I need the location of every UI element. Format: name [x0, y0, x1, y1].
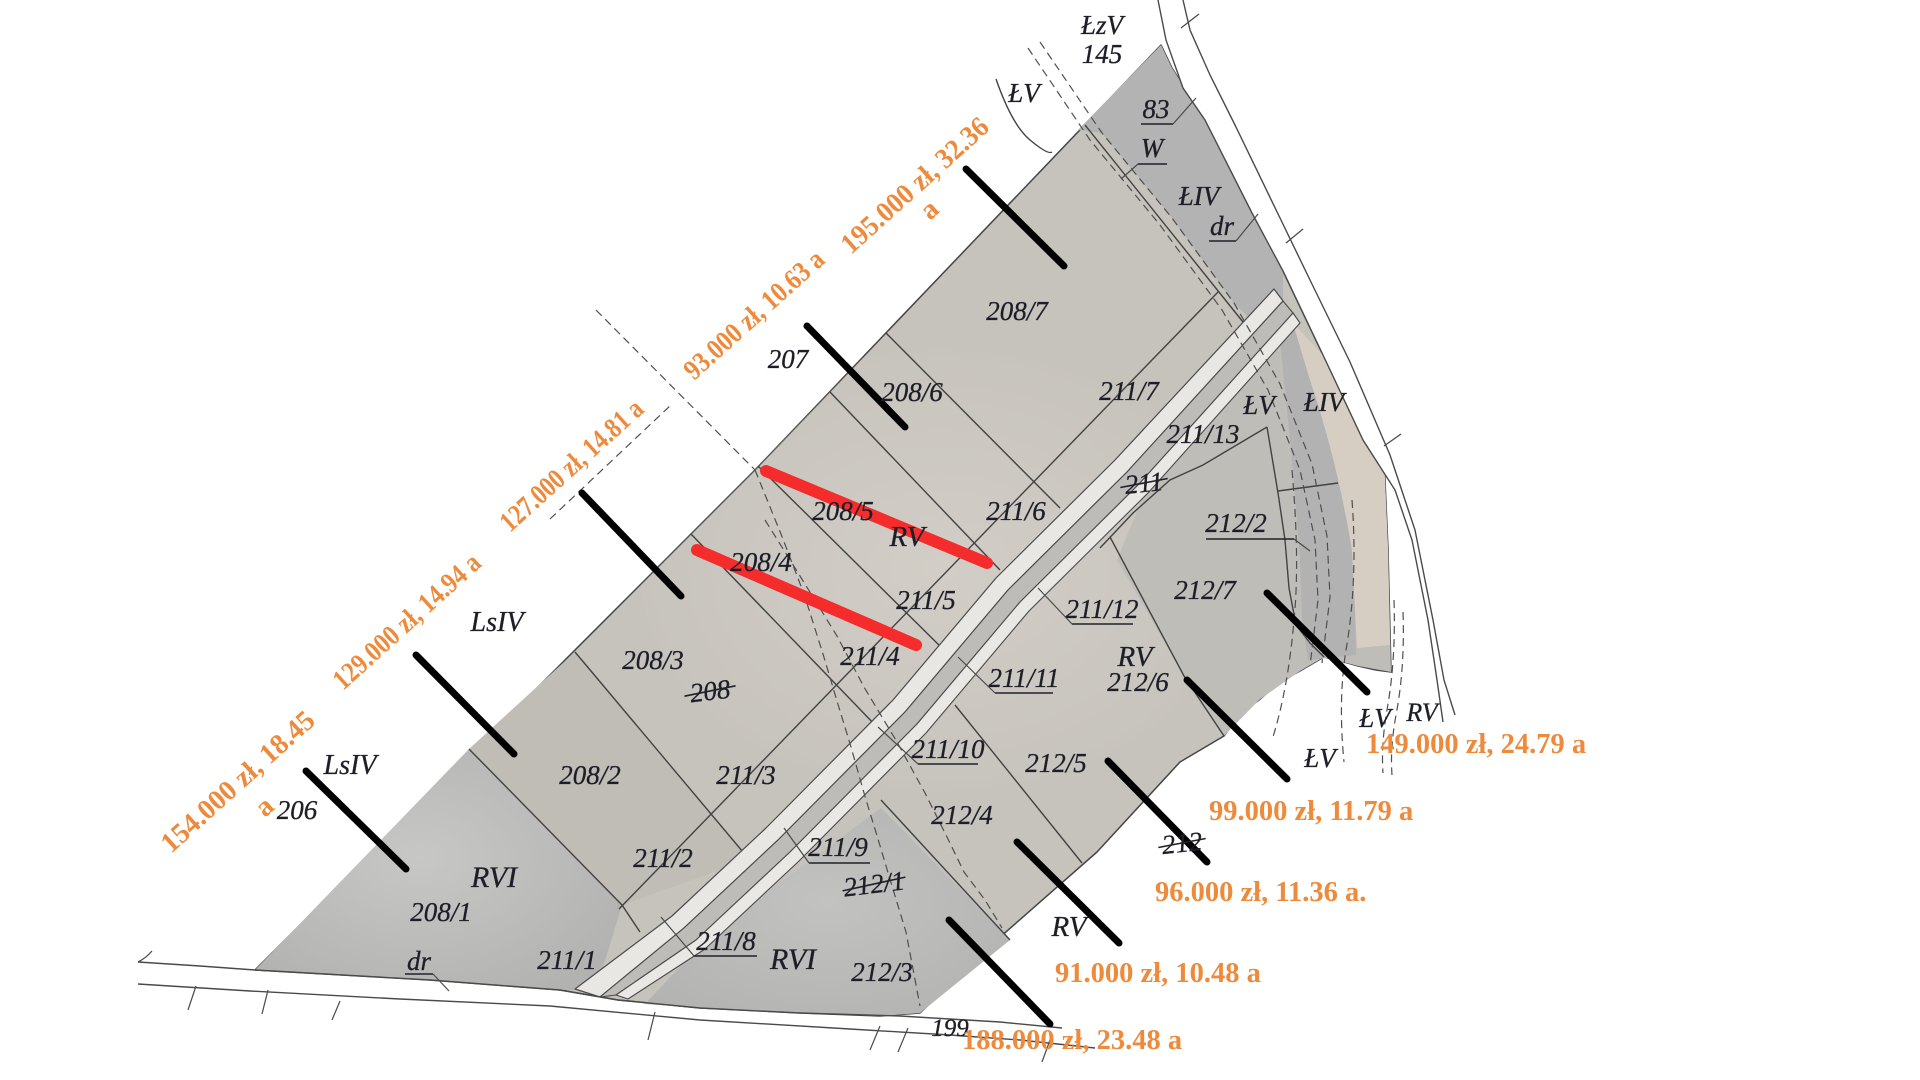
svg-text:RV: RV — [1051, 911, 1090, 943]
svg-text:208/6: 208/6 — [881, 377, 943, 407]
svg-text:LsIV: LsIV — [470, 607, 527, 638]
svg-text:a: a — [249, 791, 280, 824]
svg-text:212/4: 212/4 — [931, 800, 993, 830]
svg-text:154.000 zł, 18.45: 154.000 zł, 18.45 — [155, 705, 321, 859]
svg-text:212/3: 212/3 — [851, 957, 913, 987]
svg-text:212/2: 212/2 — [1205, 508, 1267, 538]
svg-text:dr: dr — [407, 946, 432, 976]
svg-text:211/3: 211/3 — [716, 760, 776, 790]
svg-text:208/4: 208/4 — [730, 547, 792, 577]
svg-text:211/10: 211/10 — [912, 734, 985, 764]
svg-text:149.000 zł, 24.79 a: 149.000 zł, 24.79 a — [1366, 729, 1586, 760]
svg-text:211/1: 211/1 — [537, 945, 597, 975]
svg-text:83: 83 — [1143, 94, 1170, 124]
svg-text:RV: RV — [1405, 698, 1440, 727]
svg-text:211/9: 211/9 — [808, 832, 868, 862]
svg-text:RVI: RVI — [769, 943, 818, 976]
svg-text:211/8: 211/8 — [696, 926, 756, 956]
svg-text:207: 207 — [768, 344, 810, 374]
svg-text:208/2: 208/2 — [559, 760, 621, 790]
svg-text:211/6: 211/6 — [986, 496, 1046, 526]
svg-text:211/11: 211/11 — [989, 663, 1060, 693]
svg-text:208/3: 208/3 — [622, 645, 684, 675]
svg-text:ŁV: ŁV — [1242, 390, 1278, 420]
svg-text:212/7: 212/7 — [1174, 575, 1237, 605]
svg-text:212/5: 212/5 — [1025, 748, 1087, 778]
svg-text:211/2: 211/2 — [633, 843, 693, 873]
svg-text:211/5: 211/5 — [896, 585, 956, 615]
svg-text:a: a — [914, 194, 945, 227]
svg-text:ŁV: ŁV — [1007, 78, 1043, 108]
svg-text:99.000 zł, 11.79 a: 99.000 zł, 11.79 a — [1209, 796, 1413, 827]
svg-text:ŁIV: ŁIV — [1303, 387, 1348, 417]
svg-text:208/1: 208/1 — [410, 897, 472, 927]
svg-text:211/4: 211/4 — [840, 641, 900, 671]
svg-text:dr: dr — [1210, 211, 1235, 241]
svg-text:129.000 zł, 14.94 a: 129.000 zł, 14.94 a — [327, 547, 487, 696]
svg-text:208/7: 208/7 — [986, 296, 1049, 326]
svg-text:LsIV: LsIV — [323, 750, 380, 781]
svg-text:208/5: 208/5 — [812, 496, 874, 526]
svg-text:96.000 zł, 11.36 a.: 96.000 zł, 11.36 a. — [1155, 877, 1366, 908]
svg-text:211/7: 211/7 — [1099, 376, 1160, 406]
svg-text:188.000 zł, 23.48 a: 188.000 zł, 23.48 a — [962, 1025, 1182, 1056]
svg-text:211/12: 211/12 — [1066, 594, 1139, 624]
svg-text:145: 145 — [1082, 39, 1123, 69]
svg-text:91.000 zł, 10.48 a: 91.000 zł, 10.48 a — [1055, 958, 1261, 989]
svg-text:211/13: 211/13 — [1167, 419, 1240, 449]
svg-text:W: W — [1141, 133, 1166, 163]
svg-text:RVI: RVI — [470, 861, 519, 894]
svg-text:127.000 zł, 14.81 a: 127.000 zł, 14.81 a — [494, 393, 650, 538]
svg-text:ŁIV: ŁIV — [1178, 181, 1223, 211]
svg-text:ŁV: ŁV — [1303, 743, 1339, 773]
svg-text:195.000 zł, 32.36: 195.000 zł, 32.36 — [835, 111, 995, 260]
svg-text:RV: RV — [889, 521, 928, 553]
svg-text:ŁzV: ŁzV — [1080, 10, 1127, 40]
svg-text:206: 206 — [277, 795, 318, 825]
svg-text:212/6: 212/6 — [1107, 667, 1169, 697]
